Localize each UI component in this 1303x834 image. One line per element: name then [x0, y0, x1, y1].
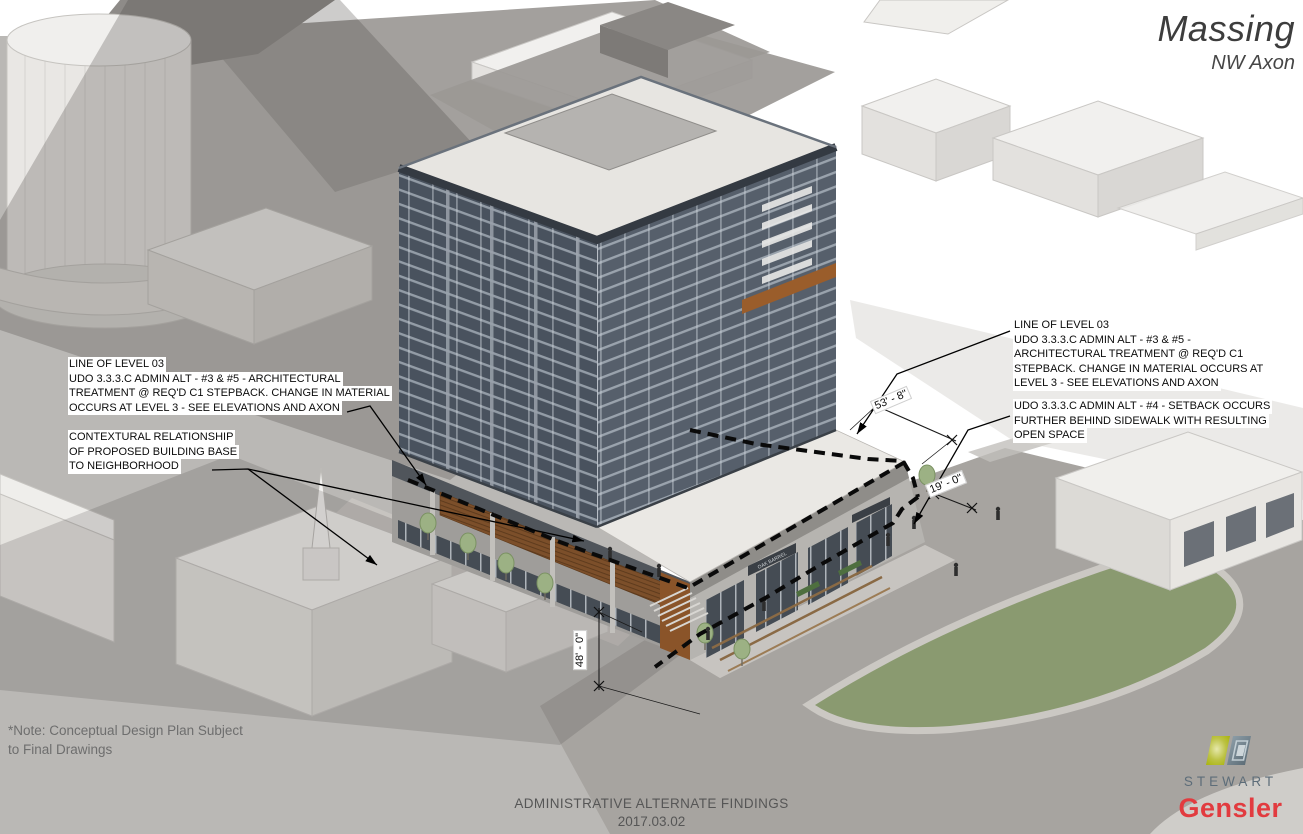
page-title: Massing — [1157, 8, 1295, 50]
annotation-left-level03: LINE OF LEVEL 03 UDO 3.3.3.C ADMIN ALT -… — [68, 357, 392, 415]
annotation-setback: UDO 3.3.3.C ADMIN ALT - #4 - SETBACK OCC… — [1013, 399, 1272, 443]
footer-date: 2017.03.02 — [0, 814, 1303, 829]
title-block: Massing NW Axon — [1157, 8, 1295, 75]
annotation-right-level03: LINE OF LEVEL 03 UDO 3.3.3.C ADMIN ALT -… — [1013, 318, 1265, 391]
conceptual-note: *Note: Conceptual Design Plan Subject to… — [8, 721, 243, 759]
dimension-label-frontage: 48' - 0" — [573, 630, 587, 670]
gensler-wordmark: Gensler — [1168, 793, 1293, 824]
stewart-logo-icon — [1204, 735, 1258, 767]
footer-title: ADMINISTRATIVE ALTERNATE FINDINGS — [0, 796, 1303, 811]
branding-block: STEWART Gensler — [1168, 735, 1293, 824]
sheet: OAK BARREL — [0, 0, 1303, 834]
stewart-wordmark: STEWART — [1168, 774, 1293, 789]
annotation-context-relationship: CONTEXTURAL RELATIONSHIP OF PROPOSED BUI… — [68, 430, 239, 474]
sheet-footer: ADMINISTRATIVE ALTERNATE FINDINGS 2017.0… — [0, 796, 1303, 829]
view-subtitle: NW Axon — [1157, 52, 1295, 75]
